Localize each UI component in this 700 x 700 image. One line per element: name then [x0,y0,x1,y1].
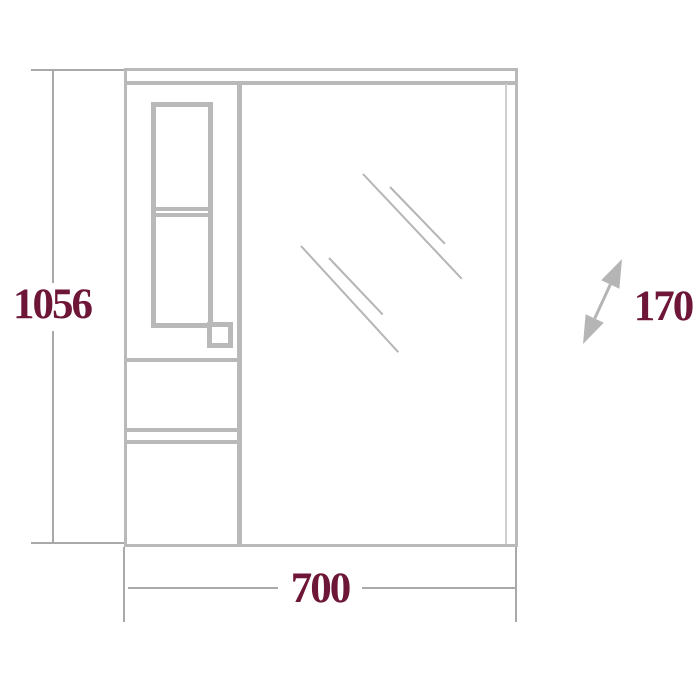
width-dimension-line-left [128,587,278,589]
dimension-drawing: 1056 700 170 [0,0,700,700]
socket-box [207,322,233,348]
shelf-line-upper [156,207,208,211]
width-extension-line-left [123,547,125,622]
shelf-line-lower [156,213,208,217]
depth-dimension-label: 170 [621,285,700,329]
height-extension-line-top [31,69,124,71]
height-extension-line-bottom [31,542,124,544]
drawer-divider-lower-line [127,440,237,444]
height-dimension-line-lower [52,331,54,544]
section-divider-line [237,84,242,544]
mirror-inner-edge-line [505,84,507,544]
drawer-section-top-line [127,358,237,362]
height-dimension-label: 1056 [10,283,94,327]
height-dimension-line-upper [52,69,54,283]
cornice-line [127,81,515,85]
width-dimension-line-right [362,587,516,589]
width-extension-line-right [515,547,517,622]
drawer-divider-upper-line [127,428,237,432]
width-dimension-label: 700 [278,567,362,611]
